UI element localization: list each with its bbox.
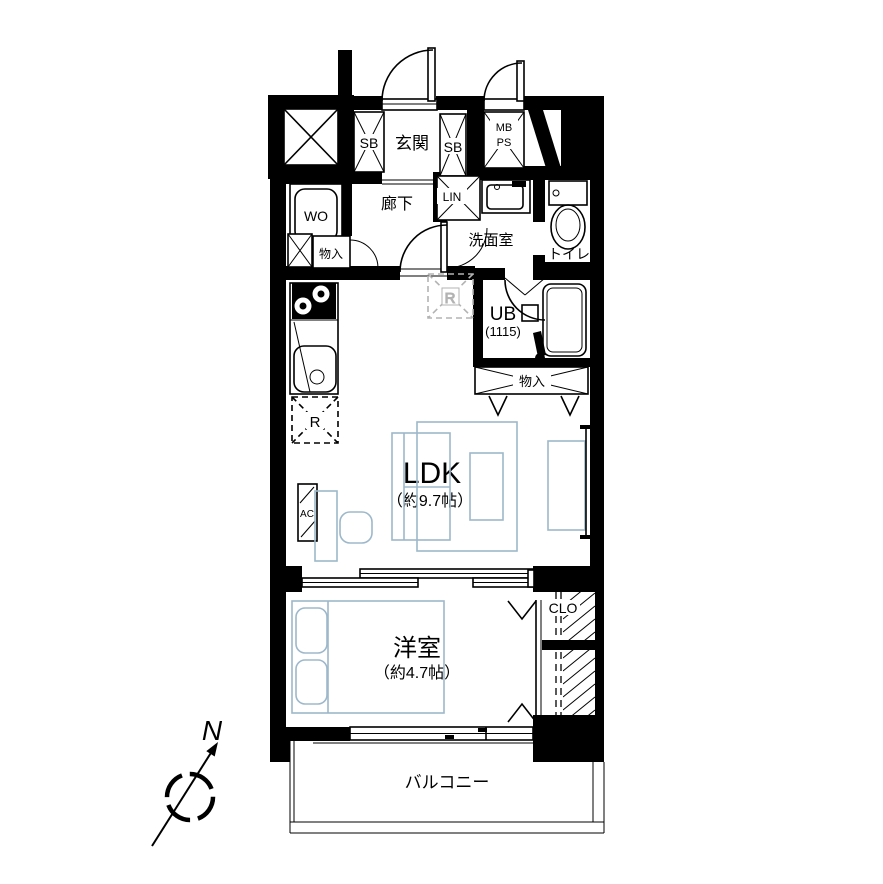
kitchen (290, 283, 338, 394)
shoe-box-left: SB (354, 112, 384, 172)
bathtub (543, 284, 586, 356)
sliding-partition (302, 569, 534, 587)
ldk-furniture (315, 422, 585, 561)
refrigerator-kitchen-label: R (310, 414, 321, 431)
compass-north-label: N (202, 715, 223, 746)
unit-bath-label: UB (490, 304, 516, 325)
chair (340, 512, 372, 543)
entrance-area: SB SB 玄関 (354, 48, 467, 184)
refrigerator-space-wall: R (428, 274, 473, 318)
meter-box-label: MB (496, 122, 513, 134)
washer-space-label: WO (304, 208, 328, 224)
ldk-size: （約9.7帖） (387, 492, 473, 510)
coffee-table (470, 453, 503, 520)
tv-board (548, 441, 585, 530)
linen-cabinet-label: LIN (443, 190, 462, 204)
hall-storage-label: 物入 (319, 247, 343, 261)
western-room-size: （約4.7帖） (374, 664, 460, 682)
shoe-box-right-label: SB (444, 139, 463, 155)
entrance-label: 玄関 (395, 134, 429, 153)
closet-doors (508, 600, 541, 723)
pipe-space-label: PS (497, 137, 512, 149)
air-conditioner: AC (298, 484, 317, 541)
ldk-storage-label: 物入 (519, 374, 545, 389)
pillow (296, 660, 327, 704)
storage-door-mark-right (561, 396, 579, 415)
ldk-label: LDK (403, 457, 461, 490)
meter-pipe-space: MB PS (484, 61, 524, 168)
pillow (296, 608, 327, 653)
toilet-label: トイレ (548, 246, 590, 262)
hall-cabinet (288, 234, 312, 267)
western-room-label: 洋室 (393, 635, 441, 662)
compass: N (152, 715, 223, 846)
corridor-ldk-door (400, 222, 447, 276)
corridor-label: 廊下 (381, 195, 413, 213)
shaft-box (284, 109, 338, 165)
washroom-label: 洗面室 (468, 232, 513, 249)
dining-table (315, 491, 337, 561)
toilet-fixture (549, 181, 587, 249)
hall-storage: 物入 (313, 236, 378, 268)
stove (292, 283, 336, 319)
storage-door-mark-left (489, 396, 507, 415)
floor-plan-page: SB SB 玄関 MB PS WO (0, 0, 883, 884)
refrigerator-space-kitchen: R (292, 397, 338, 443)
entrance-door (382, 48, 437, 110)
kitchen-sink (294, 346, 336, 392)
shoe-box-right: SB (440, 114, 466, 176)
western-room-area: 洋室 （約4.7帖） (292, 600, 541, 723)
floor-plan: SB SB 玄関 MB PS WO (0, 0, 883, 884)
mbps-door (484, 61, 524, 110)
ldk-storage: 物入 (475, 367, 588, 415)
toilet-area: トイレ (548, 181, 590, 262)
linen-cabinet: LIN (437, 176, 480, 220)
ldk-area: LDK （約9.7帖） AC (298, 422, 592, 561)
refrigerator-wall-label: R (445, 290, 456, 307)
balcony-label: バルコニー (405, 773, 490, 792)
unit-bath-area: UB (1115) (485, 278, 586, 363)
vanity-sink (482, 180, 530, 213)
closet-label: CLO (549, 600, 578, 616)
unit-bath-size: (1115) (485, 324, 521, 339)
shoe-box-left-label: SB (360, 135, 379, 151)
air-conditioner-label: AC (300, 509, 314, 520)
sofa (392, 433, 450, 540)
